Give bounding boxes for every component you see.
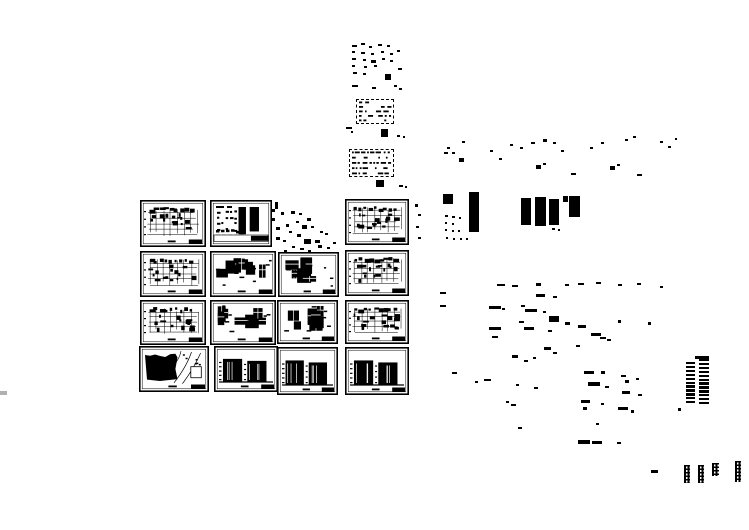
scatter-annotation-mark (446, 237, 448, 239)
scatter-annotation-mark (490, 150, 493, 152)
scatter-annotation-mark (387, 45, 390, 47)
drawing-sheet-detail-sheet-4 (277, 300, 338, 344)
scatter-annotation-mark (352, 85, 358, 87)
scatter-annotation-mark (304, 239, 311, 244)
scatter-annotation-mark (621, 375, 626, 377)
scatter-annotation-mark (601, 403, 604, 405)
vertical-dot-text-column (698, 465, 704, 483)
scatter-annotation-mark (610, 166, 615, 170)
high-rise-floor-bar (699, 367, 709, 369)
drawing-sheet-structural-plan-3 (140, 300, 206, 345)
scatter-annotation-mark (0, 391, 7, 395)
scatter-annotation-mark (320, 231, 323, 233)
scatter-annotation-mark (631, 410, 634, 413)
scatter-annotation-mark (351, 131, 353, 133)
scatter-annotation-mark (552, 228, 555, 230)
scatter-annotation-mark (283, 240, 286, 242)
scatter-annotation-mark (452, 216, 455, 218)
scatter-annotation-mark (300, 248, 304, 250)
scatter-annotation-mark (327, 247, 330, 249)
scatter-annotation-mark (452, 223, 454, 225)
scatter-annotation-mark (536, 294, 545, 297)
scatter-annotation-mark (583, 407, 587, 410)
scatter-annotation-mark (512, 355, 518, 358)
scatter-annotation-mark (578, 325, 586, 328)
scatter-annotation-mark (675, 138, 677, 140)
scatter-annotation-mark (445, 215, 448, 217)
drawing-sheet-elevation-2 (277, 347, 338, 395)
scatter-annotation-mark (563, 196, 568, 202)
scatter-annotation-mark (492, 336, 498, 338)
cad-preview-canvas (0, 0, 749, 530)
scatter-annotation-mark (578, 283, 584, 285)
scatter-annotation-mark (286, 224, 289, 227)
vertical-dot-text-column (735, 461, 741, 482)
scatter-annotation-mark (296, 221, 299, 223)
scatter-annotation-mark (363, 73, 366, 75)
scatter-annotation-mark (440, 292, 446, 294)
scatter-annotation-mark (617, 442, 621, 444)
high-rise-floor-bar (686, 370, 695, 372)
high-rise-floor-bar (686, 374, 695, 376)
scatter-annotation-mark (346, 127, 352, 129)
scatter-annotation-mark (625, 139, 628, 141)
scatter-annotation-mark (601, 142, 604, 144)
scatter-annotation-mark (584, 371, 594, 374)
scatter-annotation-mark (588, 382, 600, 386)
scatter-annotation-mark (458, 230, 460, 232)
scatter-annotation-mark (596, 423, 599, 425)
scatter-annotation-mark (543, 163, 546, 165)
spec-text-table (356, 99, 394, 124)
high-rise-floor-bar (686, 378, 695, 380)
scatter-annotation-mark (489, 306, 501, 309)
scatter-annotation-mark (272, 209, 275, 212)
scatter-annotation-mark (381, 129, 388, 137)
scatter-annotation-mark (399, 88, 402, 90)
scatter-annotation-mark (521, 305, 525, 307)
scatter-annotation-mark (416, 226, 419, 228)
scatter-annotation-mark (381, 51, 384, 53)
scatter-annotation-mark (315, 240, 320, 243)
high-rise-floor-bar (686, 393, 695, 395)
drawing-sheet-structural-plan-1 (140, 200, 206, 247)
scatter-annotation-mark (531, 142, 535, 144)
scatter-annotation-mark (637, 174, 642, 176)
scatter-annotation-mark (352, 65, 355, 67)
high-rise-floor-bar (686, 385, 695, 387)
scatter-annotation-mark (502, 308, 505, 310)
scatter-annotation-mark (525, 309, 537, 312)
scatter-annotation-mark (276, 237, 280, 240)
scatter-annotation-mark (445, 222, 447, 224)
scatter-annotation-mark (353, 72, 357, 74)
scatter-annotation-mark (511, 404, 516, 406)
scatter-annotation-mark (462, 141, 465, 143)
scatter-annotation-mark (466, 238, 468, 240)
scatter-annotation-mark (452, 372, 457, 374)
drawing-sheet-floor-plan-3 (345, 300, 409, 344)
scatter-annotation-mark (651, 470, 658, 473)
scatter-annotation-mark (275, 202, 278, 209)
scatter-annotation-mark (660, 141, 663, 143)
scatter-annotation-mark (453, 238, 455, 240)
scatter-annotation-mark (648, 322, 651, 325)
scatter-annotation-mark (499, 158, 502, 160)
scatter-annotation-mark (352, 45, 357, 47)
scatter-annotation-mark (534, 387, 538, 389)
scatter-annotation-mark (443, 194, 453, 204)
scatter-annotation-mark (625, 380, 629, 383)
high-rise-floor-bar (699, 398, 709, 400)
scatter-annotation-mark (543, 311, 546, 313)
scatter-annotation-mark (678, 408, 681, 411)
scatter-annotation-mark (418, 237, 421, 239)
high-rise-floor-bar (699, 390, 709, 392)
scatter-annotation-mark (281, 212, 284, 215)
drawing-sheet-elevation-1 (214, 346, 278, 392)
scatter-annotation-mark (452, 152, 455, 154)
scatter-annotation-mark (372, 87, 376, 89)
scatter-annotation-mark (600, 337, 606, 339)
scatter-annotation-mark (394, 85, 397, 87)
vertical-dot-text-column (712, 463, 719, 476)
drawing-sheet-site-plan (139, 346, 209, 392)
scatter-annotation-mark (591, 333, 601, 336)
scatter-annotation-mark (297, 234, 301, 237)
high-rise-floor-bar (686, 366, 695, 368)
scatter-annotation-mark (506, 401, 509, 403)
drawing-sheet-detail-sheet-1 (210, 251, 276, 297)
drawing-sheet-structural-plan-2 (140, 251, 206, 297)
scatter-annotation-mark (445, 229, 447, 231)
scatter-annotation-mark (415, 204, 418, 207)
scatter-annotation-mark (291, 211, 295, 214)
scatter-annotation-mark (535, 197, 546, 226)
scatter-annotation-mark (361, 43, 365, 45)
scatter-annotation-mark (325, 233, 328, 235)
scatter-annotation-mark (571, 173, 576, 175)
scatter-annotation-mark (289, 231, 292, 233)
scatter-annotation-mark (576, 345, 580, 347)
scatter-annotation-mark (475, 381, 478, 383)
scatter-annotation-mark (581, 400, 590, 403)
spec-text-table (349, 149, 394, 177)
scatter-annotation-mark (617, 164, 620, 166)
scatter-annotation-mark (460, 238, 462, 240)
scatter-annotation-mark (618, 320, 621, 323)
high-rise-floor-bar (699, 379, 709, 381)
scatter-annotation-mark (385, 74, 391, 80)
scatter-annotation-mark (361, 52, 365, 54)
scatter-annotation-mark (459, 217, 461, 219)
scatter-annotation-mark (447, 147, 450, 149)
scatter-annotation-mark (397, 50, 400, 52)
scatter-annotation-mark (592, 441, 602, 444)
scatter-annotation-mark (308, 250, 311, 252)
scatter-annotation-mark (660, 286, 663, 288)
high-rise-floor-bar (699, 402, 709, 404)
scatter-annotation-mark (363, 59, 366, 61)
scatter-annotation-mark (512, 285, 518, 287)
scatter-annotation-mark (605, 386, 609, 388)
scatter-annotation-mark (333, 242, 336, 244)
scatter-annotation-mark (390, 60, 393, 62)
scatter-annotation-mark (369, 46, 372, 48)
scatter-annotation-mark (374, 65, 377, 67)
scatter-annotation-mark (399, 185, 403, 187)
scatter-annotation-mark (536, 165, 541, 169)
scatter-annotation-mark (668, 146, 671, 148)
vertical-dot-text-column (684, 465, 690, 483)
scatter-annotation-mark (524, 327, 534, 330)
scatter-annotation-mark (397, 135, 400, 137)
scatter-annotation-mark (510, 144, 513, 146)
high-rise-floor-bar (699, 359, 709, 361)
scatter-annotation-mark (596, 282, 601, 284)
high-rise-floor-bar (699, 363, 709, 365)
scatter-annotation-mark (378, 44, 382, 46)
drawing-sheet-floor-plan-1 (345, 199, 409, 245)
scatter-annotation-mark (519, 321, 524, 323)
drawing-sheet-heavy-wall-plan (210, 200, 272, 247)
scatter-annotation-mark (371, 60, 376, 63)
scatter-annotation-mark (558, 229, 560, 231)
scatter-annotation-mark (292, 246, 295, 248)
scatter-annotation-mark (403, 136, 405, 138)
scatter-annotation-mark (548, 330, 552, 332)
scatter-annotation-mark (459, 158, 464, 162)
scatter-annotation-mark (418, 214, 421, 216)
scatter-annotation-mark (276, 227, 280, 230)
scatter-annotation-mark (352, 51, 355, 53)
scatter-annotation-mark (284, 250, 287, 252)
scatter-annotation-mark (444, 152, 448, 154)
high-rise-floor-bar (686, 389, 695, 391)
high-rise-floor-bar (686, 401, 695, 403)
scatter-annotation-mark (636, 378, 639, 380)
high-rise-floor-bar (699, 386, 709, 388)
scatter-annotation-mark (524, 360, 528, 362)
scatter-annotation-mark (536, 283, 541, 286)
scatter-annotation-mark (516, 384, 519, 386)
scatter-annotation-mark (618, 407, 628, 410)
scatter-annotation-mark (533, 357, 536, 359)
scatter-annotation-mark (520, 147, 523, 149)
scatter-annotation-mark (561, 150, 564, 152)
scatter-annotation-mark (489, 327, 501, 330)
scatter-annotation-mark (518, 427, 522, 429)
scatter-annotation-mark (601, 371, 605, 374)
scatter-annotation-mark (311, 226, 314, 228)
scatter-annotation-mark (553, 352, 557, 354)
scatter-annotation-mark (565, 284, 569, 286)
scatter-annotation-mark (376, 180, 384, 187)
scatter-annotation-mark (549, 316, 559, 322)
scatter-annotation-mark (590, 147, 593, 149)
scatter-annotation-mark (484, 379, 491, 381)
scatter-annotation-mark (382, 58, 385, 60)
scatter-annotation-mark (622, 391, 630, 394)
scatter-annotation-mark (371, 53, 374, 55)
scatter-annotation-mark (469, 192, 479, 232)
scatter-annotation-mark (272, 218, 275, 221)
scatter-annotation-mark (521, 198, 531, 225)
scatter-annotation-mark (549, 199, 559, 225)
scatter-annotation-mark (569, 196, 580, 217)
high-rise-floor-bar (699, 375, 709, 377)
scatter-annotation-mark (633, 136, 636, 138)
scatter-annotation-mark (637, 283, 641, 285)
scatter-annotation-mark (318, 245, 322, 248)
drawing-sheet-elevation-3 (345, 347, 409, 395)
high-rise-floor-bar (686, 382, 695, 384)
scatter-annotation-mark (543, 139, 547, 142)
high-rise-floor-bar (686, 397, 695, 399)
high-rise-floor-bar (699, 394, 709, 396)
scatter-annotation-mark (299, 213, 302, 215)
scatter-annotation-mark (352, 58, 356, 60)
scatter-annotation-mark (440, 305, 446, 307)
scatter-annotation-mark (398, 68, 402, 70)
scatter-annotation-mark (364, 66, 367, 68)
drawing-sheet-detail-sheet-3 (210, 300, 276, 345)
drawing-sheet-detail-sheet-2 (278, 252, 339, 297)
scatter-annotation-mark (497, 284, 505, 286)
scatter-annotation-mark (452, 230, 454, 232)
scatter-annotation-mark (390, 53, 393, 55)
scatter-annotation-mark (607, 339, 611, 341)
high-rise-floor-bar (699, 382, 709, 384)
scatter-annotation-mark (307, 218, 311, 221)
scatter-annotation-mark (544, 347, 551, 350)
scatter-annotation-mark (618, 284, 622, 286)
drawing-sheet-floor-plan-2 (345, 250, 409, 296)
scatter-annotation-mark (578, 440, 590, 444)
scatter-annotation-mark (405, 186, 407, 188)
scatter-annotation-mark (553, 142, 556, 144)
high-rise-floor-bar (699, 371, 709, 373)
scatter-annotation-mark (565, 322, 570, 325)
high-rise-floor-bar (686, 362, 695, 364)
scatter-annotation-mark (302, 225, 307, 229)
scatter-annotation-mark (638, 394, 642, 396)
scatter-annotation-mark (553, 296, 557, 298)
